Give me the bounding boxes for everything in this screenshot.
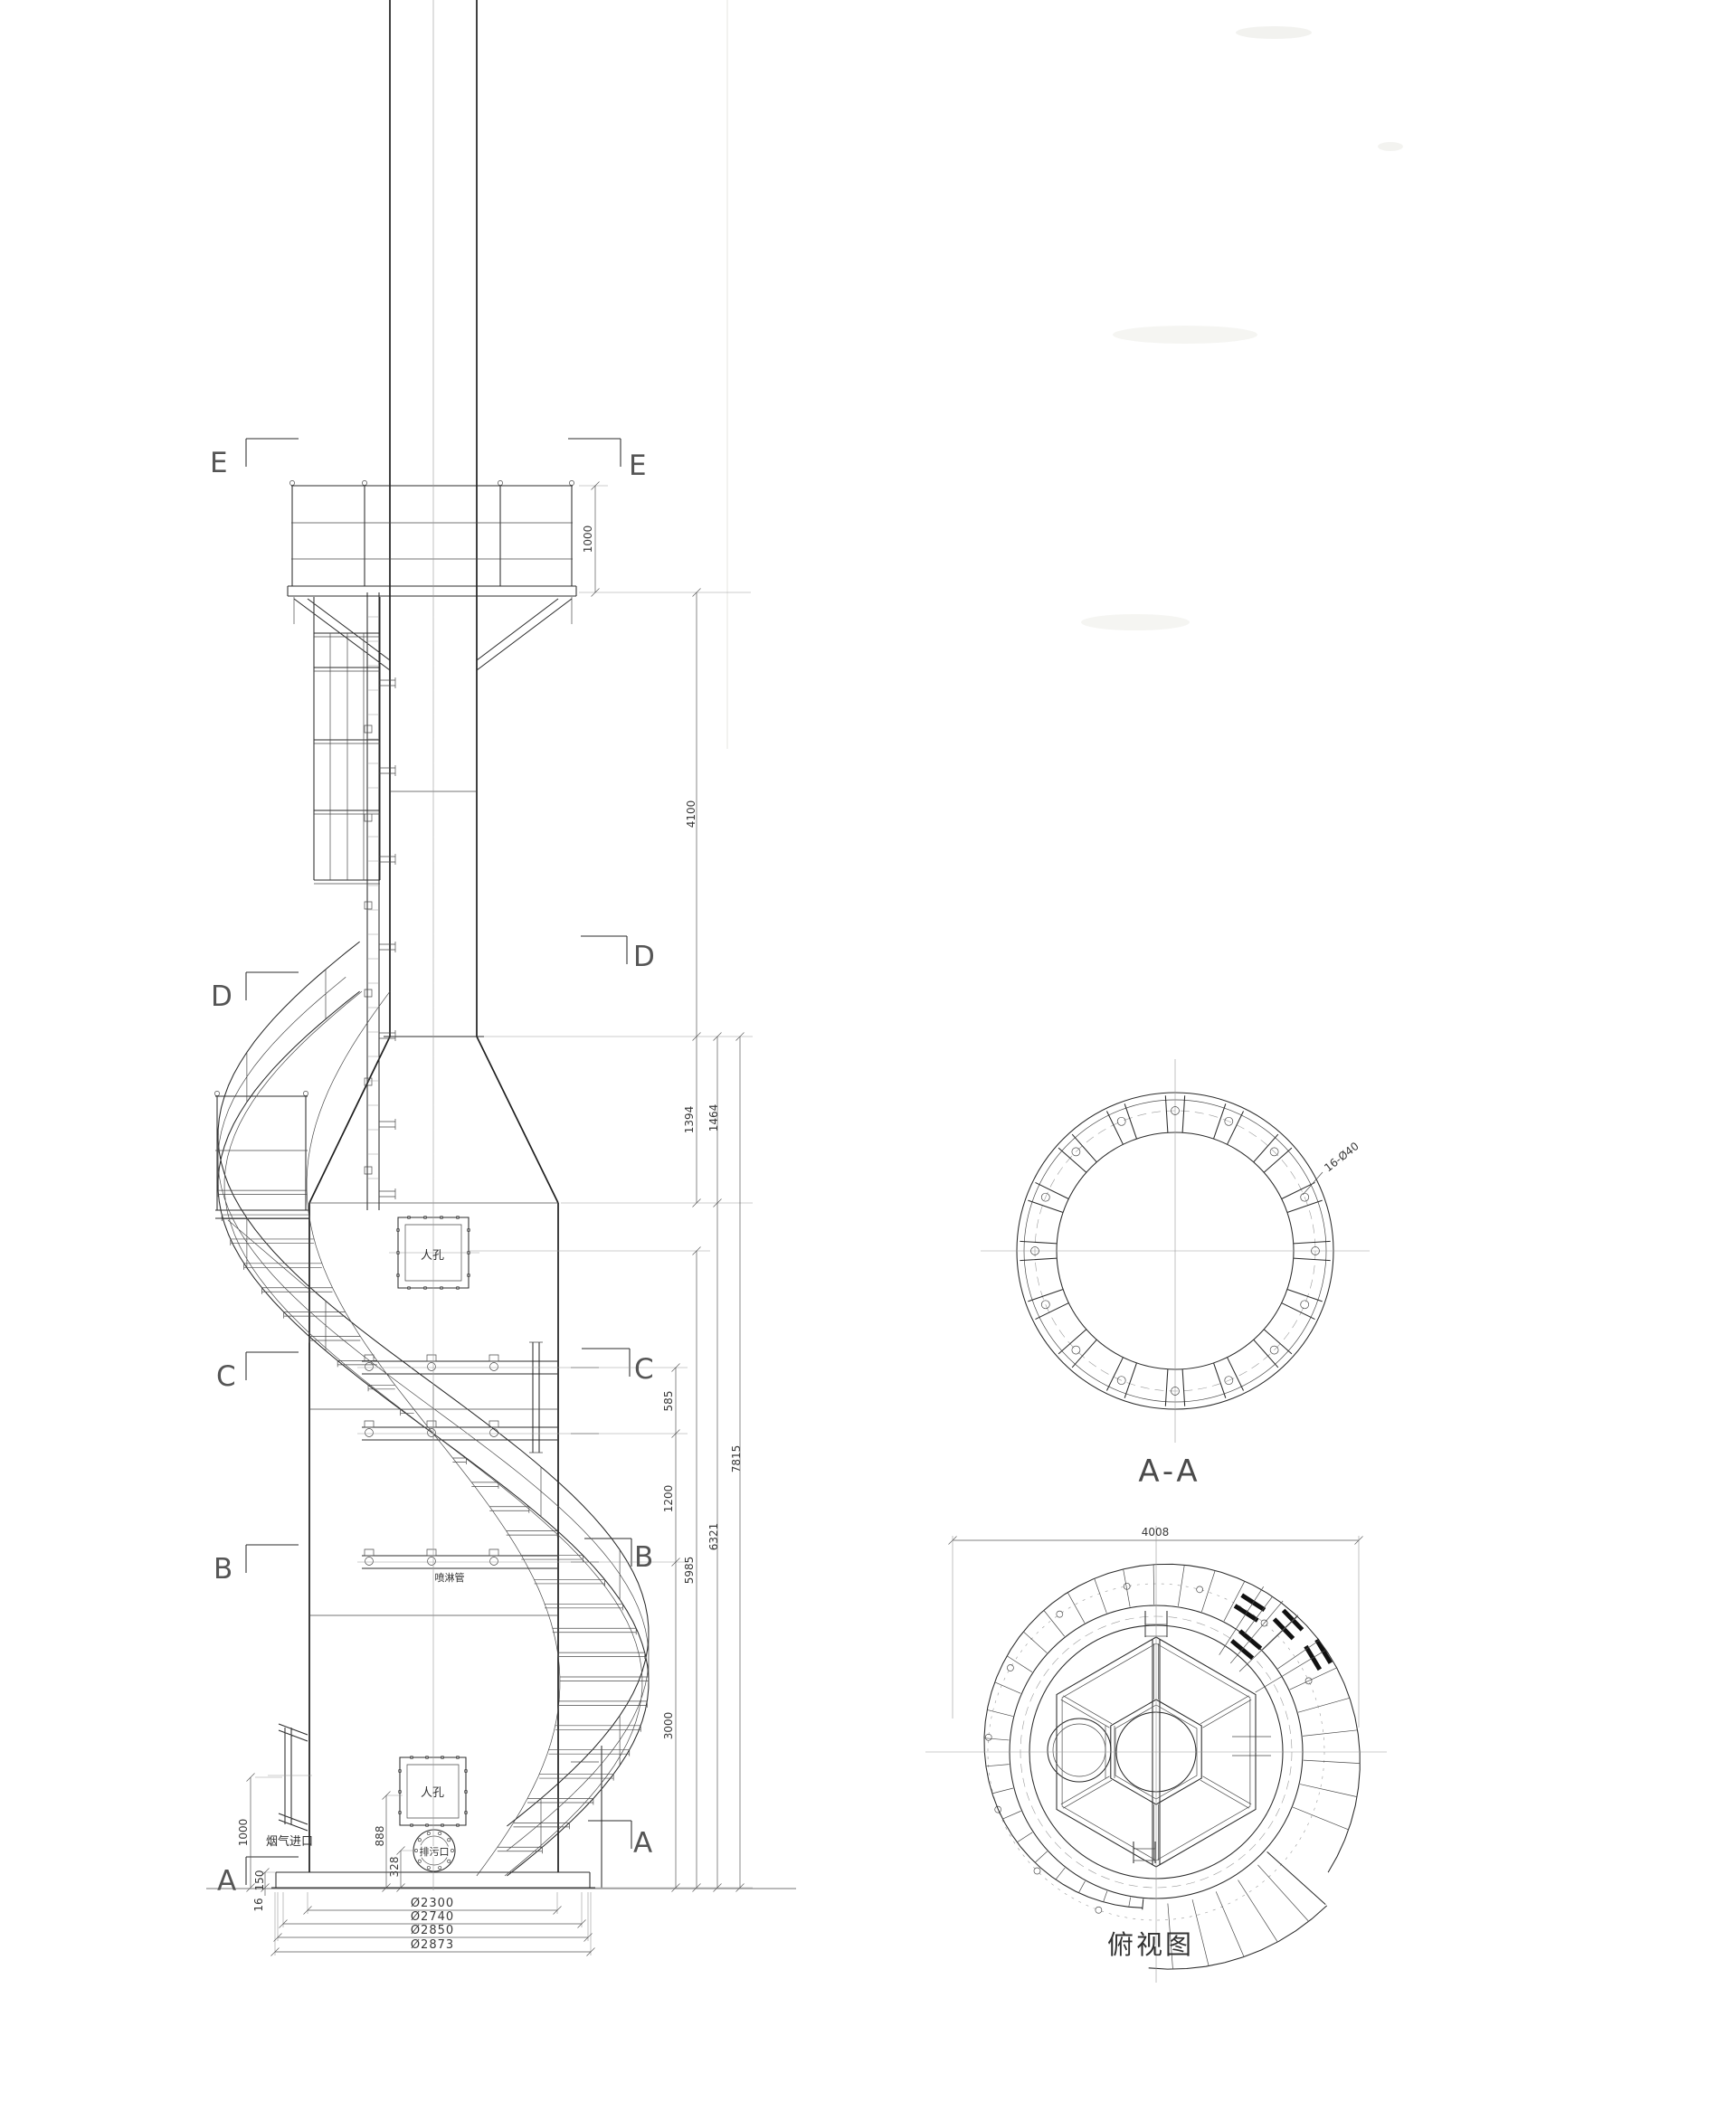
dim-cone-a: 1394 (683, 1106, 696, 1134)
drawing-sheet: E E D D C C B B A A 人孔 人孔 喷淋管 烟气进口 排污口 1… (0, 0, 1736, 2121)
dim-inlet-elev: 1000 (237, 1819, 250, 1847)
dim-cone-b: 1464 (707, 1104, 720, 1132)
dim-shell-elev: 6321 (707, 1523, 720, 1551)
section-marker-c-left: C (216, 1360, 236, 1393)
section-marker-a-right: A (633, 1827, 652, 1860)
section-marker-b-left: B (213, 1553, 232, 1586)
plan-top-view (925, 1526, 1387, 1983)
dim-top-view-width: 4008 (1142, 1526, 1170, 1539)
dim-drain-elev: 328 (388, 1857, 401, 1878)
dim-platform-rail: 1000 (582, 526, 594, 554)
section-a-a-view (981, 1059, 1370, 1443)
dim-c-span: 585 (662, 1391, 675, 1412)
dim-upper-stack: 4100 (685, 800, 697, 829)
dim-total-elev: 7815 (730, 1445, 743, 1473)
elevation-view (206, 0, 796, 1956)
label-flue-inlet: 烟气进口 (266, 1834, 313, 1849)
label-spray-pipe: 喷淋管 (435, 1571, 465, 1584)
dim-lower-span: 3000 (662, 1712, 675, 1740)
dim-diameter-2740: Ø2740 (411, 1910, 454, 1924)
scan-artifacts (727, 0, 1403, 749)
section-marker-e-left: E (210, 447, 228, 479)
dim-manhole-elev: 5985 (683, 1557, 696, 1585)
label-manhole-upper: 人孔 (421, 1249, 444, 1263)
dim-manhole-low-elev: 888 (374, 1826, 386, 1847)
dim-diameter-2850: Ø2850 (411, 1924, 454, 1937)
label-drain: 排污口 (420, 1845, 450, 1858)
section-marker-e-right: E (629, 450, 647, 482)
engineering-drawing: E E D D C C B B A A 人孔 人孔 喷淋管 烟气进口 排污口 1… (0, 0, 1736, 2121)
label-manhole-lower: 人孔 (421, 1786, 444, 1800)
section-marker-d-left: D (211, 980, 232, 1013)
dim-diameter-2873: Ø2873 (411, 1938, 454, 1952)
annotations: E E D D C C B B A A 人孔 人孔 喷淋管 烟气进口 排污口 1… (210, 447, 1361, 1960)
note-bolt-holes: 16-Ø40 (1322, 1140, 1361, 1174)
title-top-view: 俯视图 (1107, 1929, 1194, 1960)
section-marker-d-right: D (633, 941, 655, 973)
dim-plate-thickness: 16 (252, 1898, 265, 1911)
section-marker-a-left: A (217, 1865, 236, 1898)
section-marker-c-right: C (634, 1353, 654, 1386)
dim-skirt-height: 150 (253, 1870, 266, 1891)
section-marker-b-right: B (634, 1541, 653, 1574)
dim-diameter-2300: Ø2300 (411, 1897, 454, 1910)
dim-mid-span: 1200 (662, 1485, 675, 1513)
title-section-aa: A-A (1138, 1453, 1200, 1490)
